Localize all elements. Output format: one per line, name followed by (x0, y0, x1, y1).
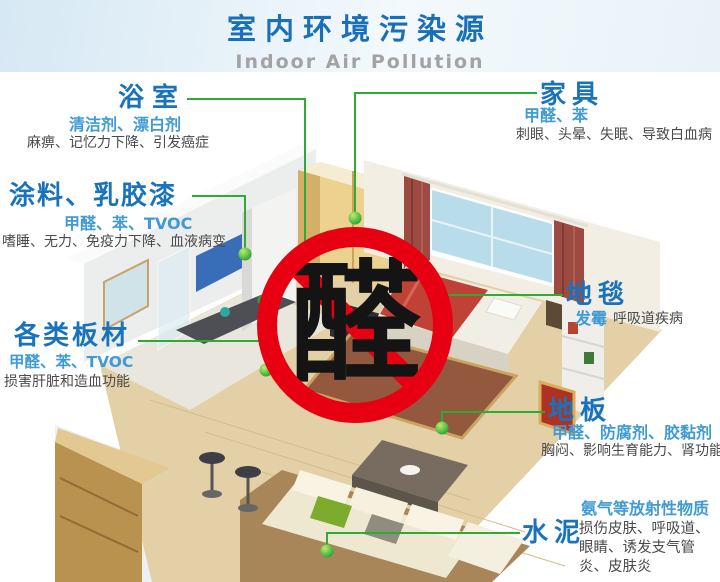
furniture-title: 家具 (540, 82, 604, 108)
infographic: 室内环境污染源 Indoor Air Pollution (0, 0, 720, 582)
floor-effects: 胸闷、影响生育能力、肾功能 (541, 444, 720, 458)
paint-pollutants: 甲醛、苯、TVOC (64, 216, 192, 232)
cement-effects: 损伤皮肤、呼吸道、眼睛、诱发支气管炎、皮肤炎 (579, 520, 720, 577)
boards-title: 各类板材 (14, 323, 130, 349)
bathroom-pollutants: 清洁剂、漂白剂 (69, 117, 181, 133)
paint-effects: 嗜睡、无力、免疫力下降、血液病变 (2, 235, 226, 249)
cement-pollutants: 氨气等放射性物质 (581, 501, 709, 517)
no-aldehyde-sign: 醛 (257, 227, 453, 423)
paint-title: 涂料、乳胶漆 (9, 183, 177, 209)
carpet-title: 地毯 (566, 282, 630, 308)
furniture-pollutants: 甲醛、苯 (524, 108, 588, 124)
prohibition-circle-icon (257, 227, 453, 423)
floor-title: 地板 (548, 398, 612, 424)
bathroom-effects: 麻痹、记忆力下降、引发癌症 (27, 136, 209, 150)
furniture-effects: 刺眼、头晕、失眠、导致白血病 (516, 128, 712, 142)
cement-title: 水泥 (522, 520, 586, 546)
boards-pollutants: 甲醛、苯、TVOC (9, 355, 133, 371)
floor-pollutants: 甲醛、防腐剂、胶黏剂 (552, 425, 712, 441)
bathroom-title: 浴室 (118, 85, 186, 111)
boards-effects: 损害肝脏和造血功能 (4, 375, 130, 389)
carpet-pollutants: 发霉 (575, 311, 607, 327)
carpet-effects: 呼吸道疾病 (613, 312, 683, 326)
kettle (220, 307, 230, 317)
